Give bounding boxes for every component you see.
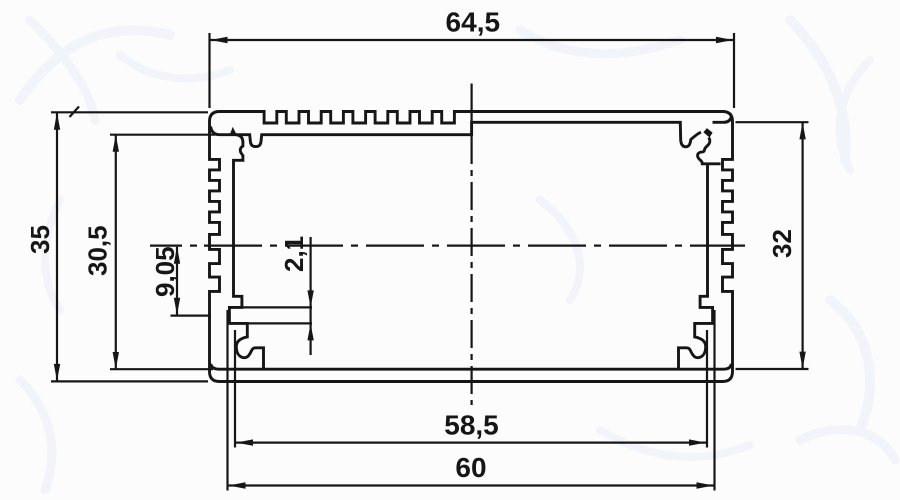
svg-text:35: 35 (25, 225, 55, 254)
svg-text:58,5: 58,5 (444, 410, 499, 441)
svg-text:2,1: 2,1 (279, 236, 309, 272)
svg-text:60: 60 (455, 452, 486, 483)
svg-text:30,5: 30,5 (83, 225, 113, 276)
svg-text:32: 32 (767, 229, 797, 258)
svg-text:9,05: 9,05 (150, 246, 180, 297)
svg-text:64,5: 64,5 (446, 7, 501, 38)
